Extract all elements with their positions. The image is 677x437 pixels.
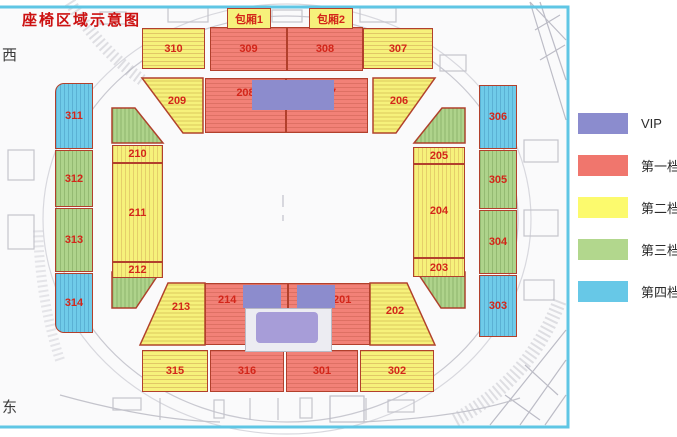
legend-label-tier2: 第二档 [641,198,677,217]
section-303-label: 303 [489,300,507,312]
vip-block-bottom-left[interactable] [243,285,281,308]
section-309-label: 309 [239,43,257,55]
section-306-label: 306 [489,111,507,123]
section-310-label: 310 [164,43,182,55]
section-316[interactable]: 316 [210,350,284,392]
legend-label-tier3: 第三档 [641,240,677,259]
section-306[interactable]: 306 [479,85,517,149]
legend-swatch-tier4 [578,281,628,302]
legend: VIP 第一档 第二档 第三档 第四档 [578,0,677,437]
section-312[interactable]: 312 [55,150,93,207]
vip-block-top[interactable] [252,80,334,110]
section-314[interactable]: 314 [55,273,93,333]
section-203[interactable]: 203 [413,258,465,277]
compass-west: 西 [2,44,17,65]
section-212[interactable]: 212 [112,262,163,278]
section-305[interactable]: 305 [479,150,517,209]
section-202-label: 202 [386,305,404,317]
section-313[interactable]: 313 [55,208,93,272]
suite-box-2[interactable]: 包厢2 [309,8,353,29]
section-305-label: 305 [489,174,507,186]
section-314-label: 314 [65,297,83,309]
stage-block [256,312,318,343]
section-213-label: 213 [172,301,190,313]
vip-block-bottom-right[interactable] [297,285,335,308]
suite-box-2-label: 包厢2 [317,11,345,27]
legend-item-vip: VIP [578,113,662,134]
section-204[interactable]: 204 [413,164,465,258]
legend-item-tier3: 第三档 [578,239,677,260]
section-212-label: 212 [128,264,146,276]
section-210-label: 210 [128,148,146,160]
section-205[interactable]: 205 [413,147,465,164]
section-310[interactable]: 310 [142,28,205,69]
section-311[interactable]: 311 [55,83,93,149]
section-308-label: 308 [316,43,334,55]
section-315[interactable]: 315 [142,350,208,392]
section-211[interactable]: 211 [112,163,163,262]
legend-swatch-tier3 [578,239,628,260]
legend-label-tier4: 第四档 [641,282,677,301]
legend-item-tier2: 第二档 [578,197,677,218]
section-304[interactable]: 304 [479,210,517,274]
section-316-label: 316 [238,365,256,377]
suite-box-1[interactable]: 包厢1 [227,8,271,29]
page-title: 座椅区域示意图 [22,9,141,30]
section-210[interactable]: 210 [112,145,163,163]
section-205-label: 205 [430,150,448,162]
compass-east: 东 [2,396,17,417]
section-308[interactable]: 308 [287,27,363,71]
legend-swatch-tier2 [578,197,628,218]
section-301-label: 301 [313,365,331,377]
section-206-label: 206 [390,95,408,107]
legend-item-tier4: 第四档 [578,281,677,302]
section-307-label: 307 [389,43,407,55]
legend-label-tier1: 第一档 [641,156,677,175]
section-209-label: 209 [168,95,186,107]
section-302[interactable]: 302 [360,350,434,392]
section-201-label: 201 [333,294,351,306]
section-214-label: 214 [218,294,236,306]
section-309[interactable]: 309 [210,27,287,71]
section-302-label: 302 [388,365,406,377]
legend-swatch-vip [578,113,628,134]
section-313-label: 313 [65,234,83,246]
section-301[interactable]: 301 [286,350,358,392]
section-312-label: 312 [65,173,83,185]
legend-swatch-tier1 [578,155,628,176]
suite-box-1-label: 包厢1 [235,11,263,27]
section-304-label: 304 [489,236,507,248]
seating-chart: 座椅区域示意图 西 东 包厢1 包厢2 310 309 308 307 315 … [0,0,677,437]
section-307[interactable]: 307 [363,28,433,69]
section-315-label: 315 [166,365,184,377]
section-311-label: 311 [65,110,83,122]
legend-item-tier1: 第一档 [578,155,677,176]
section-211-label: 211 [129,207,147,219]
section-203-label: 203 [430,262,448,274]
section-204-label: 204 [430,205,448,217]
legend-label-vip: VIP [641,116,662,131]
section-303[interactable]: 303 [479,275,517,337]
